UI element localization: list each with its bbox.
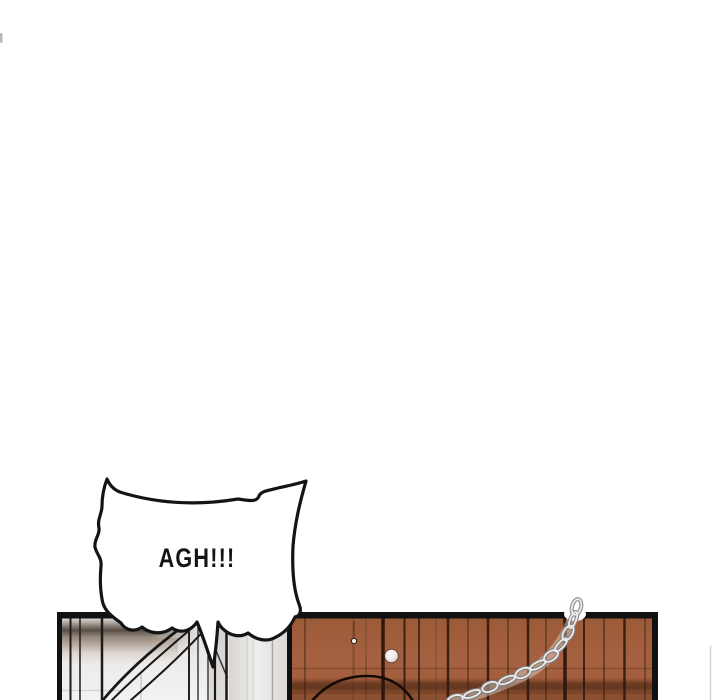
comic-page: AGH!!!	[0, 0, 720, 700]
page-edge-mark	[0, 33, 3, 43]
wood-wall-section	[292, 615, 653, 700]
speech-bubble-text: AGH!!!	[159, 544, 236, 574]
door-knob	[385, 649, 399, 663]
comic-artwork: AGH!!!	[0, 0, 720, 700]
